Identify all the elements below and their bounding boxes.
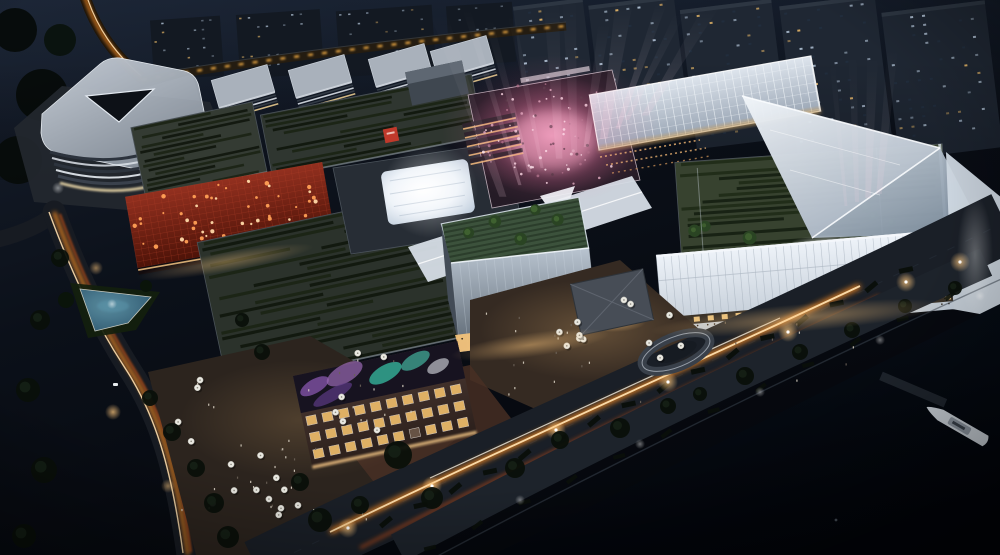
vignette	[0, 0, 1000, 555]
scene-canvas	[0, 0, 1000, 555]
aerial-night-render	[0, 0, 1000, 555]
